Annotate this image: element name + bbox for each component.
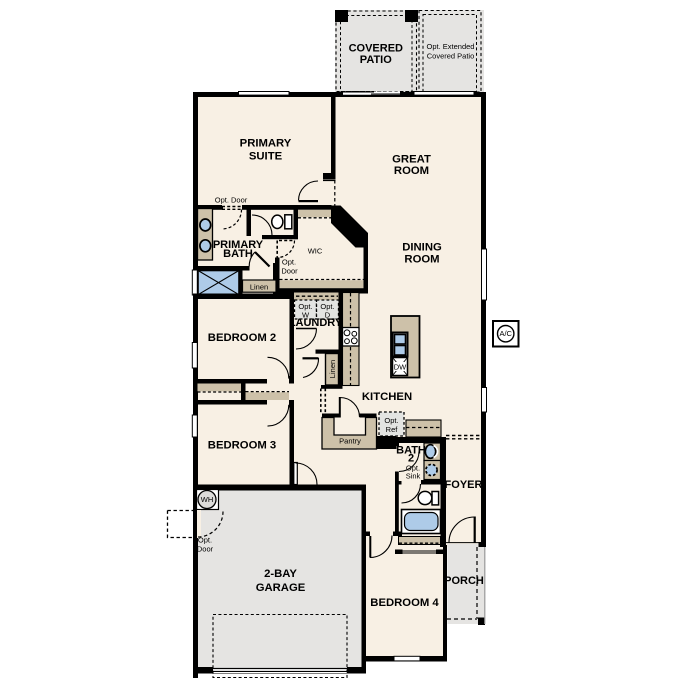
svg-text:GARAGE: GARAGE: [256, 582, 306, 594]
svg-text:Opt. Door: Opt. Door: [215, 196, 248, 205]
svg-text:BEDROOM 3: BEDROOM 3: [208, 439, 276, 451]
svg-text:Door: Door: [197, 545, 214, 554]
svg-text:BEDROOM 4: BEDROOM 4: [370, 597, 439, 609]
svg-text:Linen: Linen: [328, 360, 337, 378]
svg-text:KITCHEN: KITCHEN: [362, 391, 412, 403]
svg-text:Opt.: Opt.: [282, 258, 296, 267]
svg-text:BEDROOM 2: BEDROOM 2: [208, 332, 276, 344]
svg-text:2-BAY: 2-BAY: [264, 568, 297, 580]
svg-text:Covered Patio: Covered Patio: [427, 52, 475, 61]
svg-text:BATH: BATH: [223, 248, 253, 260]
svg-text:GREAT: GREAT: [392, 153, 431, 165]
svg-text:Linen: Linen: [250, 283, 268, 292]
svg-text:PORCH: PORCH: [444, 575, 484, 587]
svg-text:Door: Door: [281, 267, 298, 276]
svg-text:LAUNDRY: LAUNDRY: [289, 317, 343, 329]
svg-text:Opt.: Opt.: [384, 416, 398, 425]
svg-text:Sink: Sink: [406, 472, 421, 481]
svg-text:Opt. Extended: Opt. Extended: [427, 42, 475, 51]
svg-text:Opt.: Opt.: [198, 536, 212, 545]
svg-text:DW: DW: [394, 363, 407, 372]
svg-text:DINING: DINING: [402, 242, 442, 254]
svg-text:Ref: Ref: [386, 425, 399, 434]
svg-text:WIC: WIC: [308, 247, 323, 256]
svg-text:FOYER: FOYER: [445, 479, 483, 491]
svg-text:PATIO: PATIO: [360, 54, 392, 66]
svg-text:Pantry: Pantry: [339, 437, 361, 446]
svg-text:COVERED: COVERED: [349, 43, 403, 55]
svg-text:ROOM: ROOM: [404, 253, 439, 265]
svg-text:SUITE: SUITE: [249, 151, 283, 163]
svg-text:A/C: A/C: [499, 329, 512, 338]
svg-text:ROOM: ROOM: [394, 165, 429, 177]
svg-text:WH: WH: [201, 495, 214, 504]
svg-text:PRIMARY: PRIMARY: [240, 138, 292, 150]
